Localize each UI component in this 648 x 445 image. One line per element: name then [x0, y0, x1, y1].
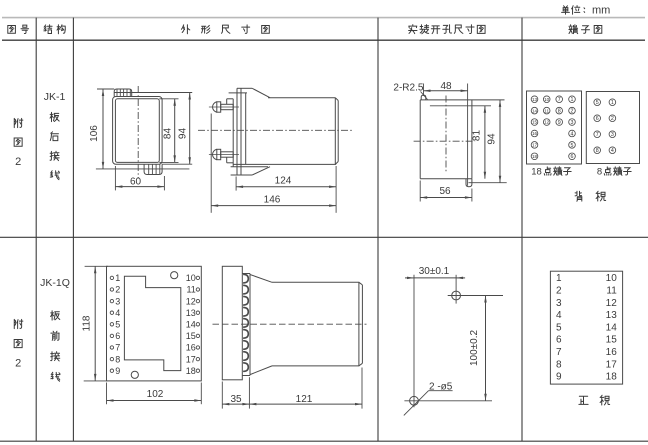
- svg-text:106: 106: [89, 125, 100, 142]
- svg-text:7: 7: [558, 97, 561, 103]
- svg-text:7: 7: [596, 132, 599, 138]
- svg-text:118: 118: [81, 315, 92, 331]
- svg-text:4: 4: [115, 308, 120, 318]
- svg-text:9: 9: [558, 120, 561, 126]
- svg-text:10: 10: [606, 273, 618, 284]
- svg-text:121: 121: [296, 394, 313, 405]
- svg-text:35: 35: [230, 394, 242, 405]
- svg-text:18: 18: [186, 366, 196, 376]
- svg-text:18: 18: [606, 372, 618, 383]
- svg-text:2: 2: [115, 285, 120, 295]
- svg-text:102: 102: [147, 389, 164, 400]
- svg-text:13: 13: [532, 97, 538, 102]
- svg-text:15: 15: [186, 331, 196, 341]
- svg-text:5: 5: [596, 100, 599, 106]
- svg-text:100±0.2: 100±0.2: [469, 330, 480, 367]
- svg-text:10: 10: [544, 97, 550, 102]
- svg-text:17: 17: [532, 143, 538, 148]
- svg-text:48: 48: [440, 81, 452, 92]
- svg-text:146: 146: [264, 195, 281, 206]
- svg-text:30±0.1: 30±0.1: [419, 266, 450, 277]
- svg-text:3: 3: [571, 120, 574, 126]
- svg-text:81: 81: [471, 130, 482, 142]
- svg-text:8: 8: [558, 109, 561, 115]
- svg-text:2: 2: [611, 116, 614, 122]
- svg-text:9: 9: [115, 366, 120, 376]
- svg-text:16: 16: [186, 343, 196, 353]
- svg-text:17: 17: [606, 359, 618, 370]
- svg-text:94: 94: [177, 128, 188, 140]
- svg-text:14: 14: [532, 108, 538, 113]
- svg-text:2: 2: [15, 358, 21, 370]
- svg-text:1: 1: [556, 273, 562, 284]
- svg-text:13: 13: [606, 310, 618, 321]
- svg-text:JK-1: JK-1: [44, 91, 66, 103]
- svg-text:8: 8: [596, 148, 599, 154]
- svg-text:mm: mm: [592, 5, 610, 17]
- svg-text:15: 15: [606, 335, 618, 346]
- svg-text:12: 12: [606, 298, 618, 309]
- svg-text:5: 5: [115, 320, 120, 330]
- svg-text:11: 11: [544, 108, 549, 113]
- svg-text:12: 12: [544, 120, 550, 125]
- svg-text:8: 8: [556, 359, 562, 370]
- svg-text:16: 16: [532, 131, 538, 136]
- svg-text:16: 16: [606, 347, 618, 358]
- svg-text:4: 4: [571, 131, 574, 137]
- svg-text:JK-1Q: JK-1Q: [40, 277, 70, 289]
- svg-text:7: 7: [115, 343, 120, 353]
- svg-text:10: 10: [186, 273, 196, 283]
- svg-text:94: 94: [486, 133, 497, 145]
- svg-text:15: 15: [532, 120, 538, 125]
- svg-text:5: 5: [571, 143, 574, 149]
- svg-text:2-R2.5: 2-R2.5: [393, 82, 423, 93]
- svg-text:13: 13: [186, 308, 196, 318]
- svg-text:2: 2: [556, 286, 562, 297]
- svg-text:7: 7: [556, 347, 562, 358]
- svg-text:84: 84: [162, 128, 173, 140]
- svg-text:9: 9: [556, 372, 562, 383]
- svg-text:60: 60: [130, 177, 142, 188]
- svg-text:1: 1: [115, 273, 120, 283]
- svg-text:2: 2: [15, 156, 21, 168]
- svg-text:3: 3: [556, 298, 562, 309]
- svg-text:6: 6: [556, 335, 562, 346]
- svg-text:3: 3: [115, 296, 120, 306]
- svg-text:14: 14: [606, 322, 618, 333]
- svg-text:124: 124: [275, 176, 292, 187]
- svg-text:4: 4: [556, 310, 562, 321]
- svg-text:2: 2: [571, 109, 574, 115]
- svg-text:11: 11: [186, 285, 195, 295]
- svg-text:18: 18: [531, 167, 542, 178]
- svg-text:1: 1: [571, 97, 574, 103]
- svg-text:8: 8: [597, 167, 602, 178]
- svg-text:6: 6: [115, 331, 120, 341]
- svg-text:17: 17: [186, 354, 196, 364]
- svg-text:12: 12: [186, 296, 196, 306]
- svg-text:18: 18: [532, 154, 538, 159]
- svg-text:5: 5: [556, 322, 562, 333]
- svg-text:11: 11: [606, 286, 617, 297]
- svg-text:6: 6: [596, 116, 599, 122]
- svg-text:4: 4: [611, 148, 614, 154]
- svg-text:8: 8: [115, 354, 120, 364]
- svg-text:56: 56: [439, 186, 451, 197]
- svg-text:6: 6: [571, 154, 574, 160]
- svg-text:1: 1: [611, 100, 614, 106]
- svg-text:3: 3: [611, 132, 614, 138]
- svg-text:14: 14: [186, 320, 196, 330]
